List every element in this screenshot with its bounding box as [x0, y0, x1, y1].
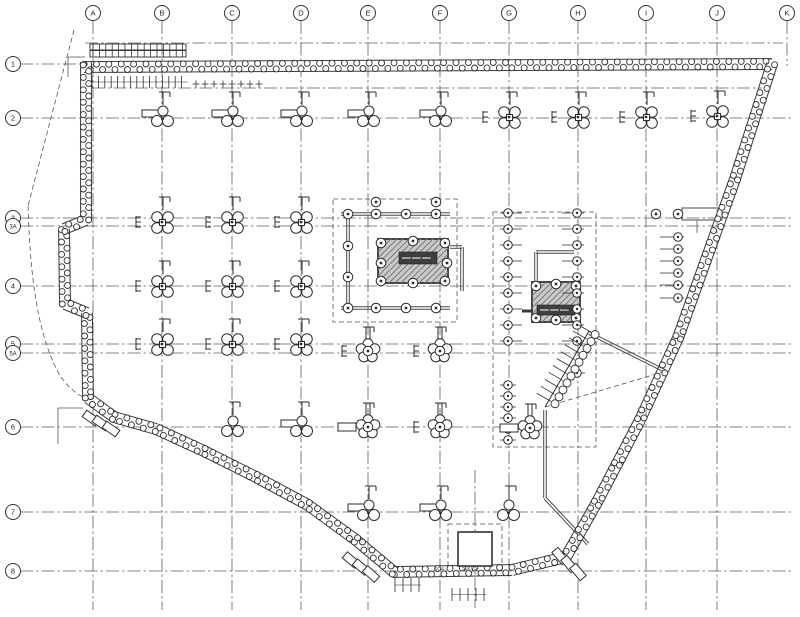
- pile-center: [677, 260, 679, 262]
- wall-pile: [99, 409, 105, 415]
- wall-pile: [284, 488, 290, 494]
- wall-pile: [298, 501, 304, 507]
- drawing-canvas: ABCDEFGHIJK1233A455A678 SC450x 75: [0, 0, 800, 617]
- wall-pile: [82, 383, 88, 389]
- wall-pile: [577, 535, 583, 541]
- wall-pile: [765, 66, 771, 72]
- pile-center: [576, 292, 578, 294]
- wall-pile: [744, 64, 750, 70]
- wall-pile: [128, 422, 134, 428]
- wall-pile: [246, 474, 252, 480]
- wall-pile: [106, 61, 112, 67]
- wall-pile: [422, 65, 428, 71]
- pile-center: [444, 280, 447, 283]
- wall-pile: [757, 64, 763, 70]
- wall-pile: [693, 294, 699, 300]
- wall-pile: [64, 258, 70, 264]
- wall-pile: [82, 333, 88, 339]
- pile-center: [507, 212, 509, 214]
- pile-center: [677, 213, 680, 216]
- wall-pile: [306, 506, 312, 512]
- wall-pile: [746, 125, 752, 131]
- pile: [297, 106, 307, 116]
- pile-cap-q: [275, 197, 312, 233]
- stair-rung: [565, 345, 579, 353]
- wall-pile: [131, 61, 137, 67]
- wall-pile: [199, 66, 205, 72]
- batten-mark: [362, 566, 379, 583]
- grid-bubble-col-F-label: F: [438, 9, 443, 18]
- wall-pile: [86, 205, 92, 211]
- pile-cap-q: [206, 319, 243, 355]
- pile-cap-tr: [420, 486, 452, 521]
- wall-pile: [503, 570, 509, 576]
- wall-pile: [59, 301, 65, 307]
- pile-cap-q: [206, 197, 243, 233]
- pile-wall-run: [85, 394, 398, 578]
- wall-pile: [279, 60, 285, 66]
- cap-rect: [338, 423, 356, 431]
- wall-pile: [59, 264, 65, 270]
- pile-cap-q: [136, 197, 173, 233]
- grid-bubble-col-D-label: D: [298, 9, 304, 18]
- wall-pile: [372, 65, 378, 71]
- wall-pile: [65, 295, 71, 301]
- grid-bubble-row-8-label: 8: [11, 567, 15, 576]
- wall-pile: [267, 61, 273, 67]
- wall-pile: [416, 571, 422, 577]
- section-mark: [298, 402, 309, 415]
- pile: [222, 116, 233, 127]
- grid-bubble-row-7: 7: [6, 505, 21, 520]
- wall-pile: [403, 60, 409, 66]
- wall-pile: [684, 317, 690, 323]
- wall-pile: [422, 566, 428, 572]
- grid-bubble-col-K-label: K: [784, 9, 789, 18]
- wall-pile: [608, 64, 614, 70]
- beams: [58, 57, 722, 545]
- wall-pile: [772, 62, 778, 68]
- wall-pile: [385, 65, 391, 71]
- wall-pile: [59, 251, 65, 257]
- wall-pile: [583, 524, 589, 530]
- section-mark: [365, 92, 376, 105]
- wall-pile: [569, 537, 575, 543]
- grid-bubble-col-A-label: A: [90, 9, 95, 18]
- wall-pile: [737, 168, 743, 174]
- wall-pile: [565, 59, 571, 65]
- wall-pile: [657, 381, 663, 387]
- pile: [291, 116, 302, 127]
- pile-center: [380, 280, 383, 283]
- excavation-dashed-curve: [28, 206, 88, 400]
- wall-pile: [217, 61, 223, 67]
- pile-center: [576, 308, 578, 310]
- grid-bubble-col-H-label: H: [575, 9, 580, 18]
- wall-pile: [711, 228, 717, 234]
- pile-cap-tr: [348, 92, 380, 127]
- wall-pile: [124, 415, 130, 421]
- pile-center: [300, 285, 303, 288]
- wall-pile: [316, 514, 322, 520]
- pile-center: [535, 317, 538, 320]
- wall-pile: [715, 216, 721, 222]
- pile-center: [529, 427, 532, 430]
- pile: [498, 510, 509, 521]
- wall-pile: [639, 407, 645, 413]
- pile-center: [677, 297, 679, 299]
- pile-center: [444, 242, 447, 245]
- wall-pile: [588, 505, 594, 511]
- wall-pile: [243, 466, 249, 472]
- section-mark: [437, 92, 448, 105]
- wall-pile: [80, 174, 86, 180]
- pile-center: [507, 417, 509, 419]
- wall-edge: [66, 62, 93, 398]
- pile: [233, 116, 244, 127]
- wall-pile: [534, 65, 540, 71]
- wall-pile: [637, 424, 643, 430]
- wall-pile: [59, 289, 65, 295]
- section-mark-e: [620, 111, 625, 123]
- wall-pile: [706, 239, 712, 245]
- wall-pile: [108, 408, 114, 414]
- section-mark: [437, 486, 448, 499]
- section-mark: [159, 92, 170, 105]
- section-mark-e: [206, 338, 211, 350]
- wall-pile: [583, 65, 589, 71]
- wall-pile: [478, 570, 484, 576]
- wall-pile: [629, 427, 635, 433]
- grid-bubble-row-6: 6: [6, 420, 21, 435]
- grid-bubble-col-C: C: [225, 6, 240, 21]
- wall-pile: [571, 65, 577, 71]
- wall-pile: [80, 62, 86, 68]
- wall-pile: [236, 66, 242, 72]
- pile-center: [367, 426, 370, 429]
- section-mark: [714, 91, 725, 104]
- wall-pile: [633, 64, 639, 70]
- wall-pile: [723, 193, 729, 199]
- wall-pile: [287, 496, 293, 502]
- wall-pile: [490, 570, 496, 576]
- grid-bubble-col-F: F: [433, 6, 448, 21]
- pile-center: [375, 213, 378, 216]
- wall-pile: [397, 65, 403, 71]
- grid-bubble-col-B-label: B: [159, 9, 164, 18]
- wall-pile: [77, 217, 83, 223]
- pile-center: [347, 276, 350, 279]
- pile-center: [439, 512, 442, 515]
- pile-center: [507, 244, 509, 246]
- wall-pile: [379, 555, 385, 561]
- wall-pile: [751, 58, 757, 64]
- details: [82, 44, 599, 601]
- wall-pile: [701, 270, 707, 276]
- wall-pile: [698, 263, 704, 269]
- section-mark: [505, 486, 516, 499]
- pile-cap-q: [136, 319, 173, 355]
- section-mark: [298, 197, 309, 210]
- wall-pile: [317, 60, 323, 66]
- grid-bubble-col-J: J: [710, 6, 725, 21]
- wall-pile: [749, 113, 755, 119]
- wall-pile: [66, 221, 72, 227]
- pile-cap-q: [275, 319, 312, 355]
- wall-pile: [335, 66, 341, 72]
- tick-comb: [395, 578, 421, 592]
- wall-pile: [428, 60, 434, 66]
- pile-center: [507, 228, 509, 230]
- pile-center: [231, 428, 234, 431]
- wall-pile: [662, 370, 668, 376]
- wall-pile: [162, 66, 168, 72]
- plus-mark: [229, 81, 236, 88]
- wall-pile: [589, 513, 595, 519]
- wall-pile: [117, 418, 123, 424]
- wall-pile: [447, 565, 453, 571]
- pile-center: [231, 118, 234, 121]
- section-mark: [506, 92, 517, 105]
- pile-center: [677, 272, 679, 274]
- section-mark-e: [136, 280, 141, 292]
- section-mark-e: [136, 338, 141, 350]
- grid-bubble-row-2-label: 2: [11, 114, 15, 123]
- pile-center: [367, 350, 370, 353]
- wall-pile: [635, 416, 641, 422]
- pile-cap-tr: [281, 92, 313, 127]
- grid-bubble-col-E: E: [361, 6, 376, 21]
- pile-center: [380, 262, 383, 265]
- pile-center: [575, 317, 578, 320]
- wall-pile: [497, 565, 503, 571]
- section-mark: [643, 92, 654, 105]
- wall-pile: [235, 468, 241, 474]
- pile-row: [500, 381, 516, 445]
- section-mark-e: [275, 338, 280, 350]
- section-mark-e: [414, 421, 419, 433]
- wall-pile: [764, 85, 770, 91]
- pile: [441, 510, 452, 521]
- wall-pile: [326, 521, 332, 527]
- pile: [430, 510, 441, 521]
- pile-center: [300, 343, 303, 346]
- grid-bubble-col-E-label: E: [365, 9, 370, 18]
- wall-pile: [726, 59, 732, 65]
- wall-pile: [224, 463, 230, 469]
- pile-cap-fr: [338, 403, 380, 438]
- pile-center: [231, 221, 234, 224]
- wall-pile: [88, 389, 94, 395]
- wall-pile: [80, 87, 86, 93]
- wall-pile: [670, 64, 676, 70]
- wall-pile: [380, 563, 386, 569]
- wall-pile: [503, 60, 509, 66]
- wall-pile: [224, 66, 230, 72]
- pile-cap-t3: [498, 486, 520, 521]
- pile: [152, 116, 163, 127]
- wall-pile: [143, 61, 149, 67]
- wall-pile: [140, 425, 146, 431]
- wall-pile: [310, 66, 316, 72]
- grid-bubble-col-I-label: I: [645, 9, 647, 18]
- wall-pile: [397, 566, 403, 572]
- wall-pile: [65, 282, 71, 288]
- wall-pile: [631, 435, 637, 441]
- batten-mark: [570, 563, 586, 580]
- grid-bubble-row-4: 4: [6, 279, 21, 294]
- pile-cap-q: [483, 92, 520, 128]
- wall-pile: [174, 66, 180, 72]
- wall-pile: [595, 502, 601, 508]
- wall-pile: [627, 59, 633, 65]
- wall-pile: [183, 443, 189, 449]
- pile-center: [412, 282, 415, 285]
- pile: [369, 116, 380, 127]
- label-mark: [560, 309, 569, 311]
- pile: [369, 510, 380, 521]
- wall-pile: [64, 270, 70, 276]
- wall-pile: [336, 528, 342, 534]
- pile-center: [446, 262, 449, 265]
- pile-wall-run: [561, 62, 777, 560]
- wall-pile: [410, 566, 416, 572]
- wall-pile: [98, 401, 104, 407]
- wall-pile: [210, 449, 216, 455]
- wall-pile: [286, 66, 292, 72]
- wall-pile: [345, 528, 351, 534]
- core-1: [343, 197, 452, 313]
- pile-cap-tr: [281, 402, 313, 437]
- wall-pile: [221, 455, 227, 461]
- pile-center: [576, 244, 578, 246]
- wall-pile: [540, 59, 546, 65]
- wall-pile: [88, 376, 94, 382]
- wall-pile: [521, 65, 527, 71]
- stair-ramp: [537, 324, 599, 408]
- wall-pile: [540, 562, 546, 568]
- wall-pile: [614, 59, 620, 65]
- wall-pile: [348, 66, 354, 72]
- pile-center: [380, 242, 383, 245]
- pile-row: [660, 233, 684, 303]
- pile: [228, 416, 238, 426]
- wall-pile: [202, 452, 208, 458]
- section-mark: [229, 402, 240, 415]
- label-mark: [540, 309, 549, 311]
- wall-pile: [670, 340, 676, 346]
- wall-pile: [266, 484, 272, 490]
- wall-pile: [676, 59, 682, 65]
- pile-center: [655, 213, 658, 216]
- pile-center: [507, 340, 509, 342]
- wall-pile: [552, 59, 558, 65]
- pile-center: [161, 343, 164, 346]
- pile-center: [405, 307, 408, 310]
- wall-pile: [369, 547, 375, 553]
- wall-pile: [753, 102, 759, 108]
- wall-pile: [109, 416, 115, 422]
- wall-pile: [599, 495, 605, 501]
- stair-rung: [557, 359, 571, 367]
- stair-rung: [553, 366, 567, 374]
- wall-pile: [447, 65, 453, 71]
- wall-pile: [644, 396, 650, 402]
- wall-pile: [86, 155, 92, 161]
- wall-pile: [686, 298, 692, 304]
- pile-center: [347, 307, 350, 310]
- grid-bubble-row-5A-label: 5A: [9, 352, 16, 358]
- foundation-plan-svg: ABCDEFGHIJK1233A455A678 SC450x 75: [0, 0, 800, 617]
- wall-pile: [705, 259, 711, 265]
- pile-center: [161, 285, 164, 288]
- wall-pile: [112, 67, 118, 73]
- wall-pile: [617, 449, 623, 455]
- pile-center: [716, 115, 719, 118]
- pile-center: [347, 245, 350, 248]
- wall-pile: [695, 64, 701, 70]
- grid-bubble-col-A: A: [86, 6, 101, 21]
- wall-pile: [664, 59, 670, 65]
- wall-pile: [681, 309, 687, 315]
- wall-pile: [761, 78, 767, 84]
- wall-pile: [603, 476, 609, 482]
- wall-pile: [654, 373, 660, 379]
- grid-bubble-col-B: B: [155, 6, 170, 21]
- pile-center: [576, 212, 578, 214]
- annotation-text: SC4: [434, 567, 444, 573]
- pile-center: [507, 395, 509, 397]
- wall-pile: [714, 235, 720, 241]
- plus-mark: [247, 81, 254, 88]
- wall-pile: [571, 546, 577, 552]
- pile-row: [562, 209, 584, 346]
- wall-pile: [689, 305, 695, 311]
- pile: [364, 500, 374, 510]
- wall-pile: [734, 161, 740, 167]
- section-mark-e: [275, 280, 280, 292]
- grid-bubble-col-G: G: [502, 6, 517, 21]
- pile-center: [300, 221, 303, 224]
- pile-row: [500, 209, 522, 346]
- wall-pile: [354, 60, 360, 66]
- section-mark-e: [414, 345, 419, 357]
- pile-center: [231, 343, 234, 346]
- wall-pile: [641, 415, 647, 421]
- pile-cap-tr: [420, 92, 452, 127]
- wall-pile: [709, 247, 715, 253]
- wall-pile: [242, 61, 248, 67]
- wall-pile: [702, 251, 708, 257]
- wall-pile: [658, 64, 664, 70]
- wall-pile: [306, 500, 312, 506]
- pile: [504, 500, 514, 510]
- wall-pile: [274, 482, 280, 488]
- wall-pile: [623, 438, 629, 444]
- wall-pile: [680, 329, 686, 335]
- wall-pile: [261, 66, 267, 72]
- wall-pile: [416, 60, 422, 66]
- wall-pile: [79, 305, 85, 311]
- grid-bubble-row-3A: 3A: [6, 219, 21, 234]
- wall-pile: [180, 435, 186, 441]
- wall-pile: [490, 60, 496, 66]
- grid-bubble-row-7-label: 7: [11, 508, 15, 517]
- pile-center: [576, 260, 578, 262]
- pile: [163, 116, 174, 127]
- wall-pile: [82, 345, 88, 351]
- section-mark: [575, 92, 586, 105]
